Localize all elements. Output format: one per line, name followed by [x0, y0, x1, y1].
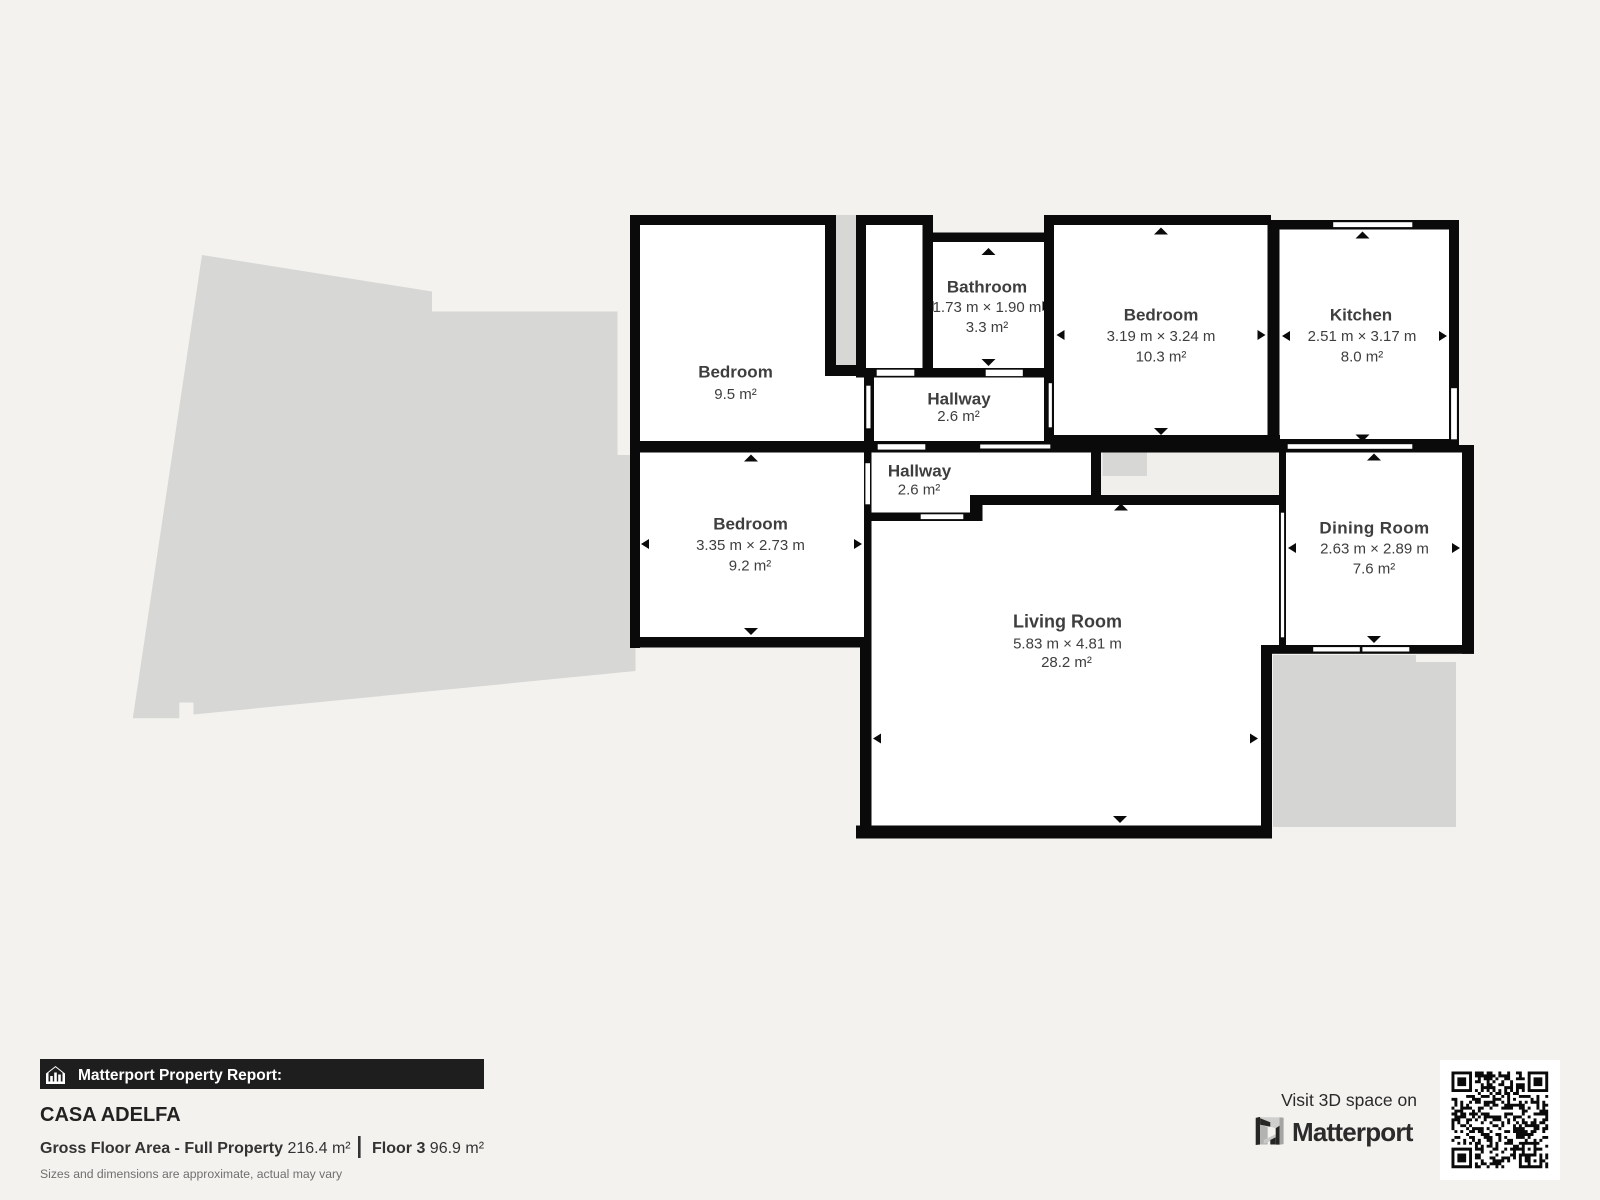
svg-text:3.3 m²: 3.3 m²	[966, 319, 1009, 336]
svg-text:2.6 m²: 2.6 m²	[937, 408, 980, 425]
svg-text:3.35 m × 2.73 m: 3.35 m × 2.73 m	[696, 537, 805, 554]
svg-text:9.2 m²: 9.2 m²	[729, 558, 772, 575]
svg-text:Visit 3D space on: Visit 3D space on	[1281, 1090, 1417, 1110]
svg-text:9.5 m²: 9.5 m²	[714, 386, 757, 403]
svg-text:Hallway: Hallway	[927, 390, 991, 409]
svg-text:2.63 m × 2.89 m: 2.63 m × 2.89 m	[1320, 541, 1429, 558]
svg-text:2.51 m × 3.17 m: 2.51 m × 3.17 m	[1308, 328, 1417, 345]
svg-text:1.73 m × 1.90 m: 1.73 m × 1.90 m	[933, 299, 1042, 316]
svg-text:CASA ADELFA: CASA ADELFA	[40, 1104, 181, 1126]
svg-text:Hallway: Hallway	[888, 462, 952, 481]
svg-text:7.6 m²: 7.6 m²	[1353, 561, 1396, 578]
svg-text:2.6 m²: 2.6 m²	[898, 482, 941, 499]
svg-text:Bedroom: Bedroom	[698, 363, 773, 382]
svg-text:Sizes and dimensions are appro: Sizes and dimensions are approximate, ac…	[40, 1167, 343, 1181]
svg-text:Kitchen: Kitchen	[1330, 306, 1392, 325]
svg-text:Bedroom: Bedroom	[713, 515, 788, 534]
svg-text:5.83 m × 4.81 m: 5.83 m × 4.81 m	[1013, 636, 1122, 653]
svg-text:Matterport: Matterport	[1292, 1117, 1414, 1147]
svg-text:Floor 3 96.9 m²: Floor 3 96.9 m²	[372, 1140, 485, 1157]
svg-text:Living Room: Living Room	[1013, 612, 1122, 632]
svg-text:3.19 m × 3.24 m: 3.19 m × 3.24 m	[1107, 328, 1216, 345]
svg-text:Matterport Property Report:: Matterport Property Report:	[78, 1067, 282, 1084]
svg-text:28.2 m²: 28.2 m²	[1041, 654, 1092, 671]
svg-text:Gross Floor Area - Full Proper: Gross Floor Area - Full Property 216.4 m…	[40, 1140, 351, 1157]
svg-text:10.3 m²: 10.3 m²	[1136, 349, 1187, 366]
svg-text:Bedroom: Bedroom	[1124, 306, 1199, 325]
svg-text:Bathroom: Bathroom	[947, 278, 1027, 297]
svg-text:8.0 m²: 8.0 m²	[1341, 349, 1384, 366]
svg-text:Dining Room: Dining Room	[1319, 519, 1429, 538]
